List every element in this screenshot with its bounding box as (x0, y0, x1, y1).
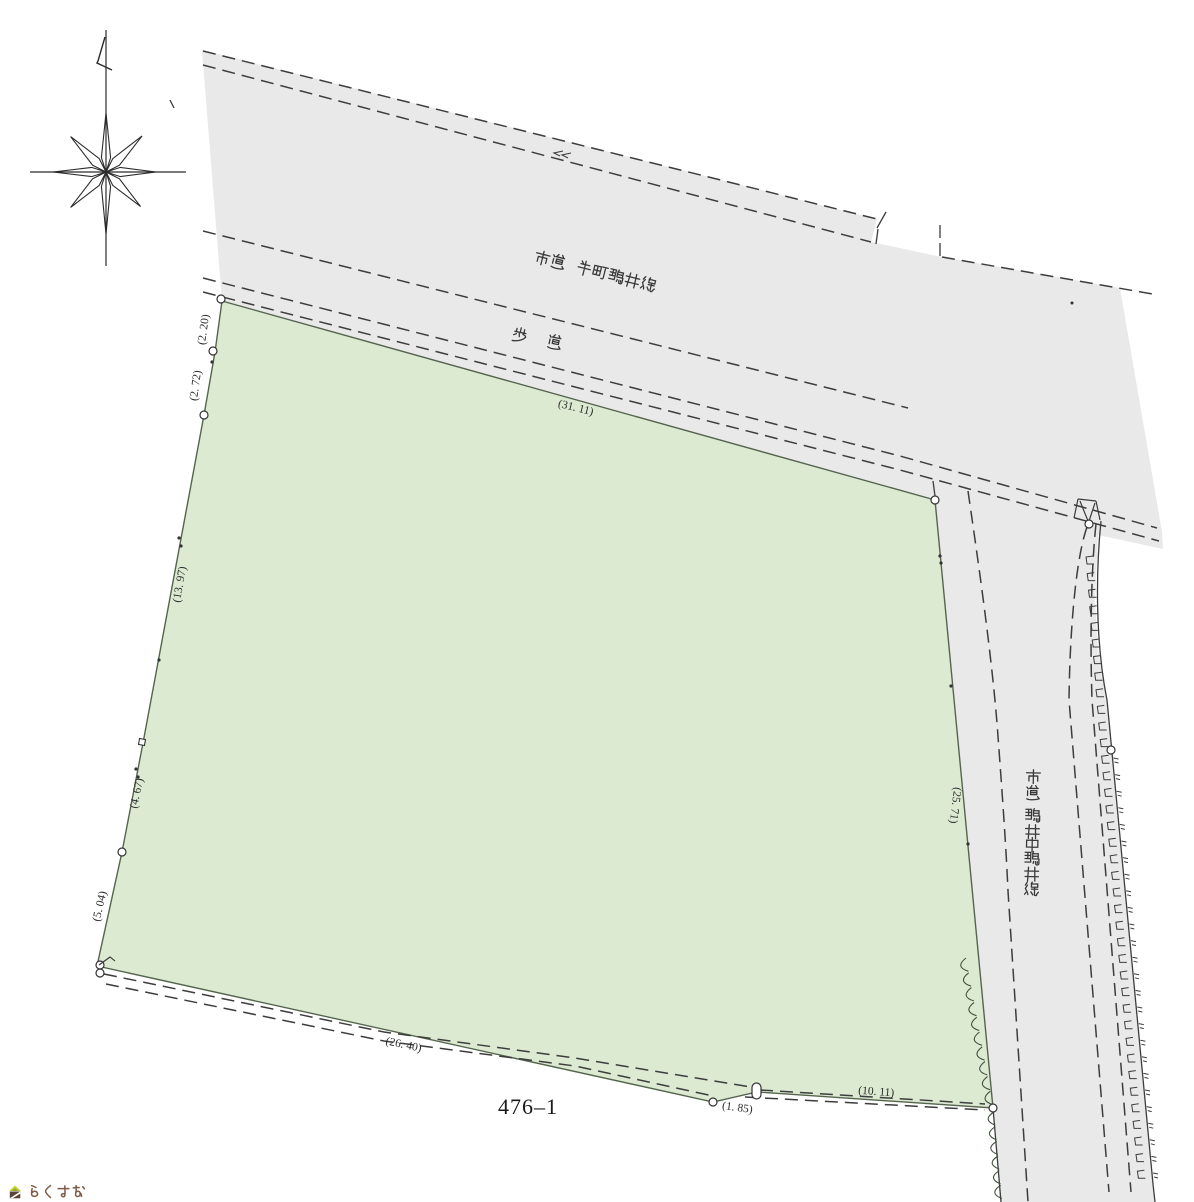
svg-text:476–1: 476–1 (498, 1094, 558, 1119)
svg-text:(10. 11): (10. 11) (858, 1085, 895, 1099)
